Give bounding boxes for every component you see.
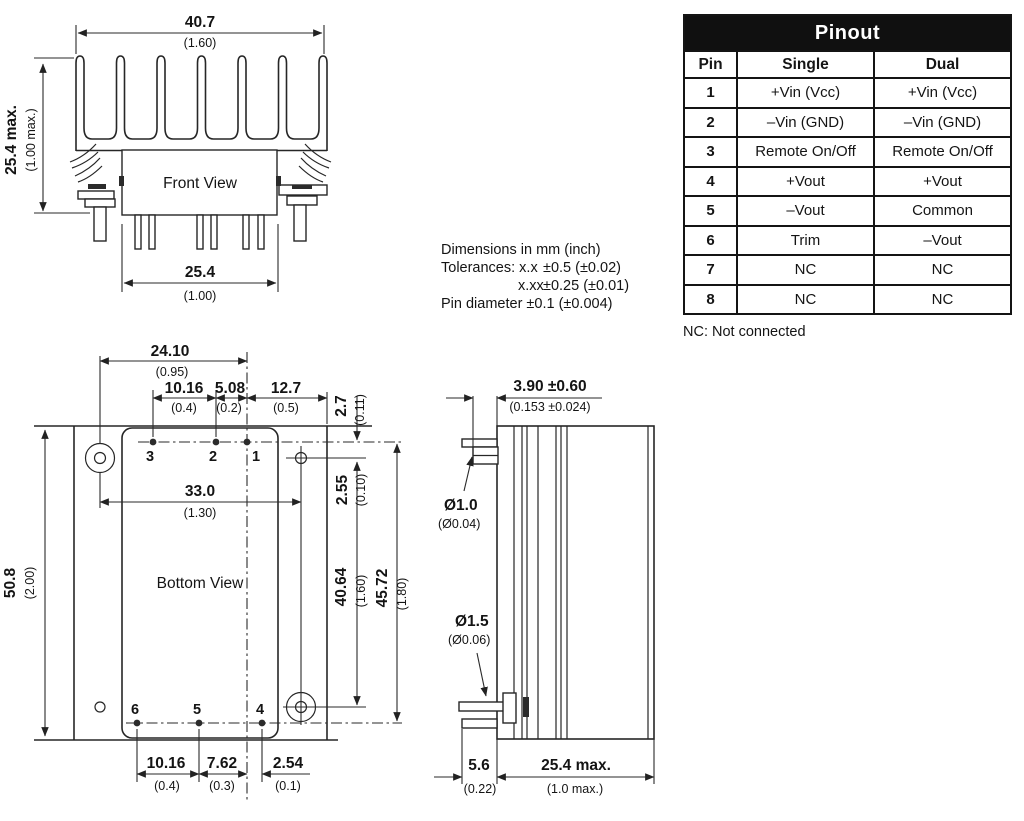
dim-standoff: 3.90 ±0.60 (0.153 ±0.024) xyxy=(446,378,602,463)
dim-2-54: 2.54 (0.1) xyxy=(262,755,310,793)
svg-text:3.90 ±0.60: 3.90 ±0.60 xyxy=(513,378,586,395)
note-units: Dimensions in mm (inch) xyxy=(441,242,601,258)
svg-text:(0.3): (0.3) xyxy=(209,779,235,793)
front-view-label: Front View xyxy=(163,175,238,192)
svg-text:(0.153 ±0.024): (0.153 ±0.024) xyxy=(509,400,590,414)
pin-label-4: 4 xyxy=(256,702,264,718)
pin-label-1: 1 xyxy=(252,449,260,465)
svg-text:(Ø0.06): (Ø0.06) xyxy=(448,633,490,647)
heatsink-outline xyxy=(76,56,327,151)
svg-text:(0.11): (0.11) xyxy=(353,394,367,426)
dim-12-7: 12.7 (0.5) xyxy=(247,380,327,424)
dim-5-08: 5.08 (0.2) xyxy=(215,380,247,415)
pinout-row: 5 –Vout Common xyxy=(684,196,1011,226)
column-header-dual: Dual xyxy=(874,51,1011,78)
dim-body-mm: 25.4 xyxy=(185,264,216,281)
pin-label-2: 2 xyxy=(209,449,217,465)
dim-body-in: (1.00) xyxy=(184,289,217,303)
dim-7-62: 7.62 (0.3) xyxy=(199,755,247,793)
front-view-height-dimension: 25.4 max. (1.00 max.) xyxy=(3,58,90,213)
svg-text:7.62: 7.62 xyxy=(207,755,237,772)
svg-text:(0.2): (0.2) xyxy=(216,401,242,415)
svg-text:(1.0 max.): (1.0 max.) xyxy=(547,782,603,796)
note-tolerance-1: ±0.5 (±0.02) xyxy=(543,260,621,276)
pinout-table: Pinout Pin Single Dual 1 +Vin (Vcc) +Vin… xyxy=(683,14,1012,315)
pinout-row: 6 Trim –Vout xyxy=(684,226,1011,256)
pinout-row: 1 +Vin (Vcc) +Vin (Vcc) xyxy=(684,78,1011,108)
pin-label-3: 3 xyxy=(146,449,154,465)
pinout-row: 4 +Vout +Vout xyxy=(684,167,1011,197)
datasheet-page: { "front_view": { "label": "Front View",… xyxy=(0,0,1024,821)
svg-text:24.10: 24.10 xyxy=(151,343,190,360)
dim-pin-dia-large: Ø1.5 (Ø0.06) xyxy=(448,613,490,696)
mounting-screw-right xyxy=(279,185,327,241)
svg-text:5.08: 5.08 xyxy=(215,380,246,397)
note-pin-diameter: Pin diameter ±0.1 (±0.004) xyxy=(441,296,612,312)
column-header-pin: Pin xyxy=(684,51,737,78)
dim-45-72: 45.72 (1.80) xyxy=(374,444,409,721)
svg-text:(1.60): (1.60) xyxy=(354,575,368,608)
svg-text:5.6: 5.6 xyxy=(468,757,490,774)
side-view: 3.90 ±0.60 (0.153 ±0.024) Ø1.0 (Ø0.04) Ø… xyxy=(430,360,690,810)
bottom-view-outline: Bottom View xyxy=(34,426,372,740)
svg-text:(0.4): (0.4) xyxy=(154,779,180,793)
svg-text:40.64: 40.64 xyxy=(333,567,350,606)
pinout-title-row: Pinout xyxy=(684,15,1011,51)
dim-50-8: 50.8 (2.00) xyxy=(2,430,45,736)
svg-text:2.7: 2.7 xyxy=(333,395,350,417)
dim-height-mm: 25.4 max. xyxy=(3,105,20,175)
svg-text:10.16: 10.16 xyxy=(165,380,204,397)
dim-33-0: 33.0 (1.30) xyxy=(100,472,301,520)
svg-text:(0.4): (0.4) xyxy=(171,401,197,415)
svg-text:10.16: 10.16 xyxy=(147,755,186,772)
side-pin-top xyxy=(462,439,498,464)
svg-text:(0.22): (0.22) xyxy=(464,782,497,796)
dim-5-6: 5.6 (0.22) xyxy=(434,729,497,796)
svg-text:2.54: 2.54 xyxy=(273,755,304,772)
svg-text:(0.5): (0.5) xyxy=(273,401,299,415)
side-view-body xyxy=(497,426,654,739)
pinout-row: 3 Remote On/Off Remote On/Off xyxy=(684,137,1011,167)
svg-text:Ø1.0: Ø1.0 xyxy=(444,497,478,514)
pinout-title: Pinout xyxy=(684,15,1011,51)
dim-25-4-max: 25.4 max. (1.0 max.) xyxy=(497,739,654,796)
svg-text:(0.95): (0.95) xyxy=(156,365,189,379)
dim-pin-dia-small: Ø1.0 (Ø0.04) xyxy=(438,457,480,531)
pinout-row: 8 NC NC xyxy=(684,285,1011,315)
svg-text:25.4 max.: 25.4 max. xyxy=(541,757,611,774)
bottom-view: Bottom View 3 2 1 6 5 4 24.10 (0.95) xyxy=(0,340,440,821)
pinout-row: 2 –Vin (GND) –Vin (GND) xyxy=(684,108,1011,138)
dim-2-55-and-40-64: 2.55 (0.10) 40.64 (1.60) xyxy=(333,462,368,705)
svg-text:Ø1.5: Ø1.5 xyxy=(455,613,489,630)
pin-label-6: 6 xyxy=(131,702,139,718)
front-view: 40.7 (1.60) Front View xyxy=(0,0,360,310)
module-body: Front View xyxy=(119,150,281,215)
front-pins xyxy=(135,215,264,249)
svg-text:(2.00): (2.00) xyxy=(23,567,37,600)
svg-text:(1.30): (1.30) xyxy=(184,506,217,520)
side-pin-bottom xyxy=(459,693,529,728)
bottom-view-label: Bottom View xyxy=(157,575,245,592)
svg-text:50.8: 50.8 xyxy=(2,568,19,599)
svg-text:(0.10): (0.10) xyxy=(354,474,368,507)
note-tolerance-2: ±0.25 (±0.01) xyxy=(543,278,629,294)
svg-text:45.72: 45.72 xyxy=(374,569,391,608)
svg-text:12.7: 12.7 xyxy=(271,380,301,397)
pinout-footnote: NC: Not connected xyxy=(683,324,806,340)
bottom-pins-top-row: 3 2 1 xyxy=(146,439,260,465)
svg-text:2.55: 2.55 xyxy=(334,475,351,506)
column-header-single: Single xyxy=(737,51,874,78)
pinout-header-row: Pin Single Dual xyxy=(684,51,1011,78)
svg-text:33.0: 33.0 xyxy=(185,483,215,500)
front-view-width-dimension: 40.7 (1.60) xyxy=(76,14,324,54)
dim-width-mm: 40.7 xyxy=(185,14,215,31)
dim-2-7: 2.7 (0.11) xyxy=(333,394,367,440)
dim-height-in: (1.00 max.) xyxy=(24,108,38,171)
note-tolerance-2-label: x.xx xyxy=(518,278,544,294)
svg-text:(Ø0.04): (Ø0.04) xyxy=(438,517,480,531)
pin-label-5: 5 xyxy=(193,702,201,718)
dim-width-in: (1.60) xyxy=(184,36,217,50)
note-tolerances-label: Tolerances: x.x xyxy=(441,260,538,276)
svg-text:(1.80): (1.80) xyxy=(395,578,409,611)
pinout-row: 7 NC NC xyxy=(684,255,1011,285)
svg-text:(0.1): (0.1) xyxy=(275,779,301,793)
